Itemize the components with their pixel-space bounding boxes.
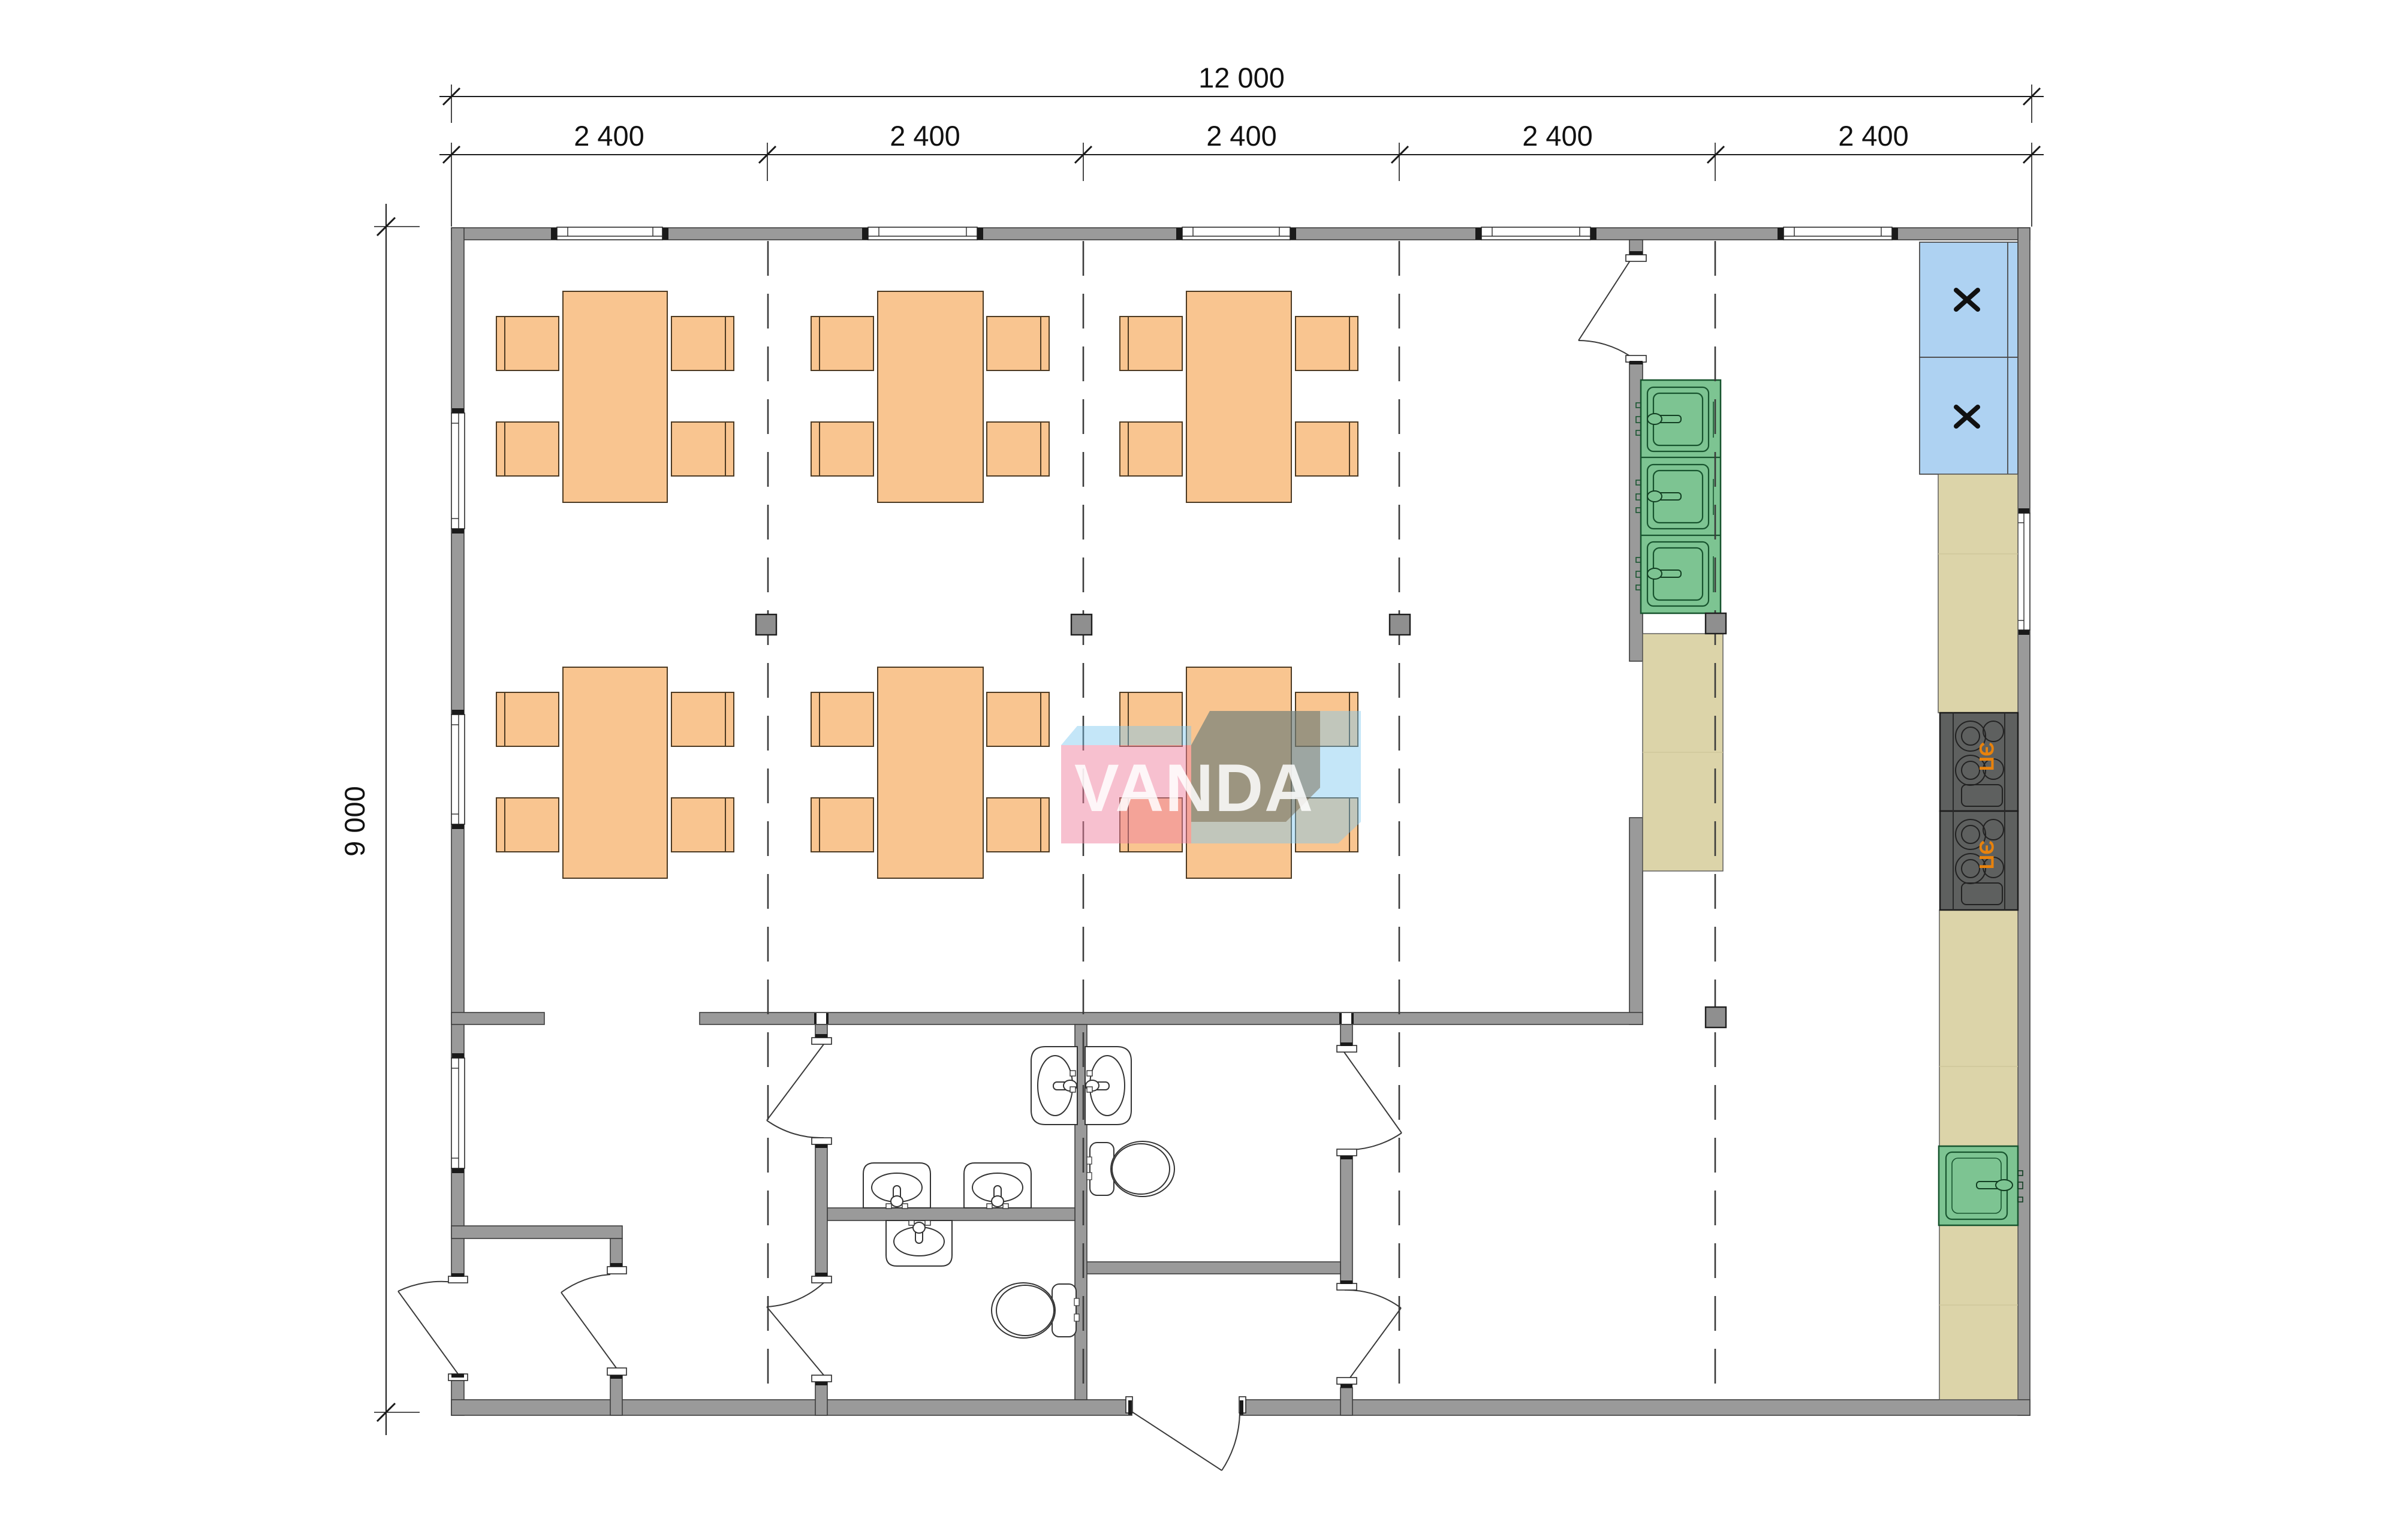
svg-text:2 400: 2 400	[574, 120, 644, 152]
svg-text:2 400: 2 400	[1522, 120, 1593, 152]
svg-text:2 400: 2 400	[1206, 120, 1277, 152]
svg-text:9 000: 9 000	[339, 786, 370, 857]
svg-text:2 400: 2 400	[1838, 120, 1909, 152]
svg-text:12 000: 12 000	[1198, 62, 1285, 94]
svg-text:ЭП: ЭП	[1975, 742, 1998, 771]
svg-text:ЭП: ЭП	[1975, 840, 1998, 870]
svg-text:2 400: 2 400	[890, 120, 960, 152]
svg-text:VANDA: VANDA	[1074, 751, 1314, 825]
